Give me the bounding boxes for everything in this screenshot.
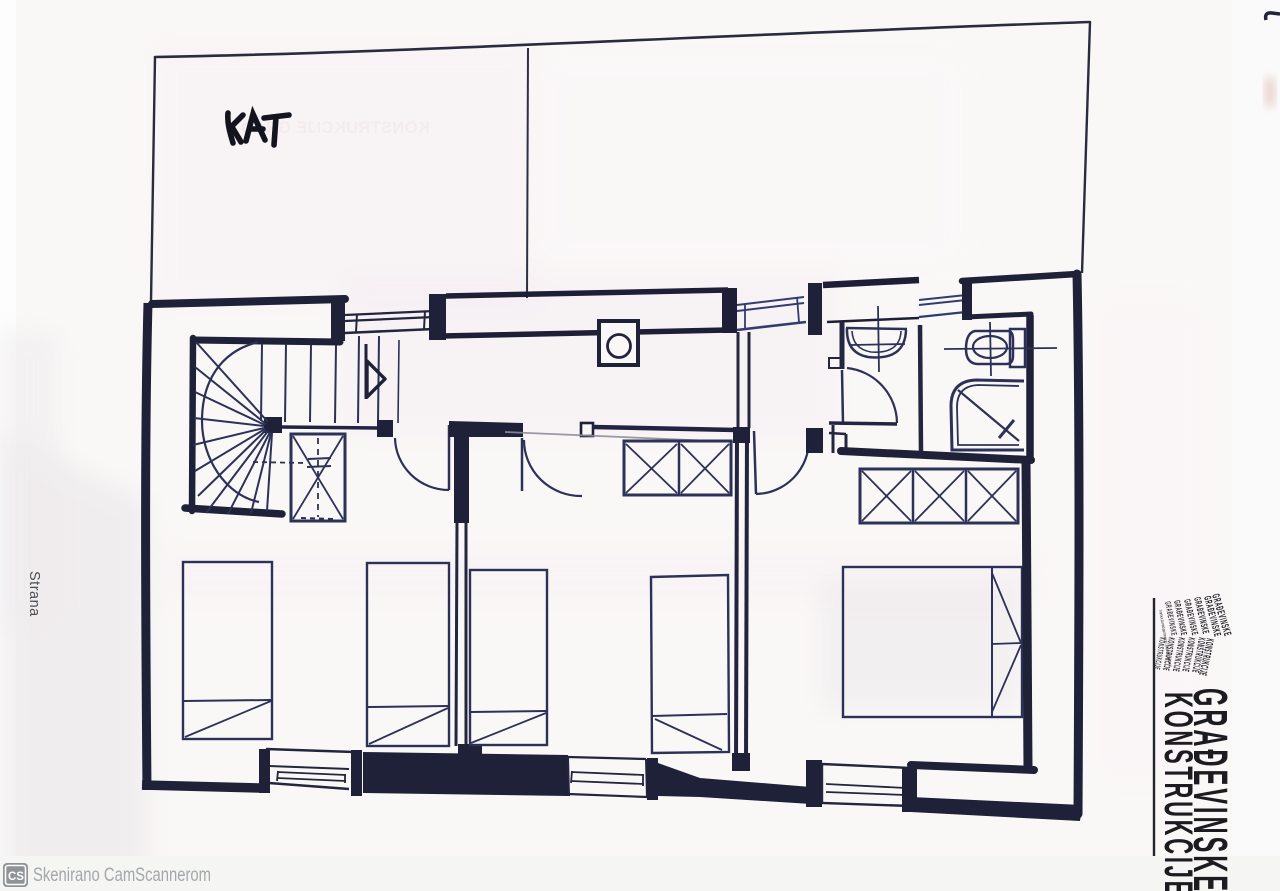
svg-text:KONSTRUKCIJE GRAĐ: KONSTRUKCIJE GRAĐ xyxy=(241,118,430,137)
svg-text:Skenirano CamScannerom: Skenirano CamScannerom xyxy=(33,864,211,886)
svg-text:CS: CS xyxy=(8,871,24,883)
svg-text:KONSTRUKCIJE: KONSTRUKCIJE xyxy=(1156,692,1200,891)
svg-text:Strana: Strana xyxy=(26,571,42,617)
